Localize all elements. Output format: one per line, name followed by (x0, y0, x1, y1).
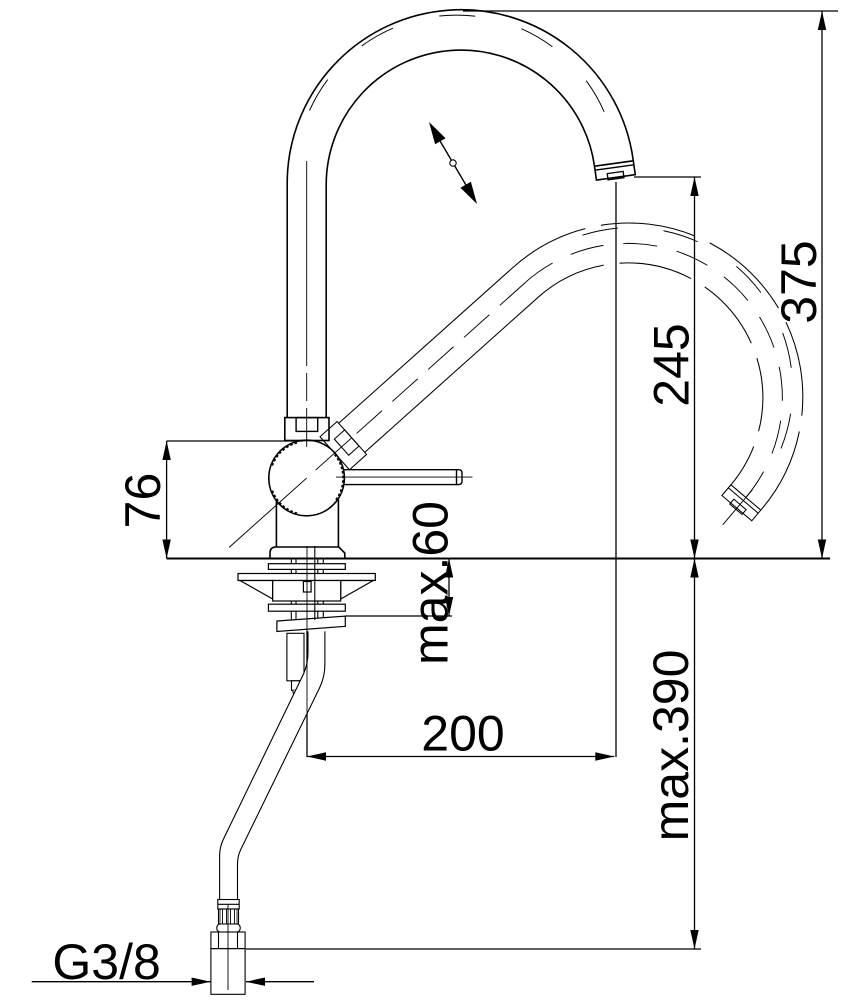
svg-text:76: 76 (115, 473, 171, 529)
svg-text:G3/8: G3/8 (52, 934, 160, 990)
svg-text:375: 375 (771, 240, 827, 323)
svg-text:245: 245 (644, 323, 700, 406)
svg-text:max.60: max.60 (403, 501, 459, 665)
svg-text:max.390: max.390 (643, 650, 699, 842)
svg-text:200: 200 (421, 706, 504, 762)
